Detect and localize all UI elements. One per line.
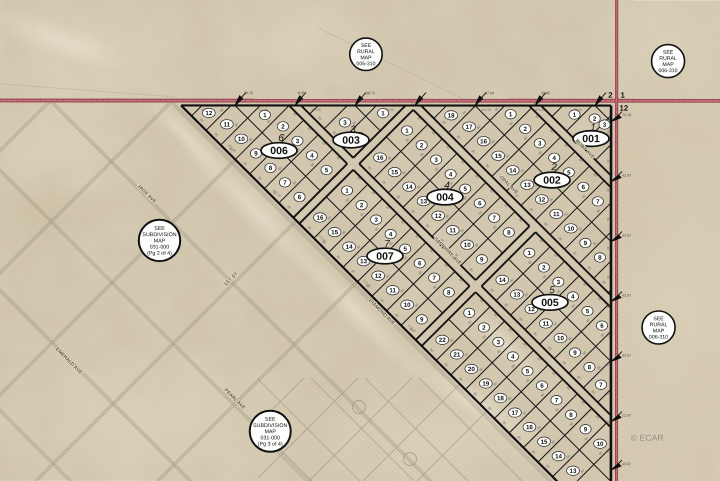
- svg-text:(Pg 3 of 4): (Pg 3 of 4): [258, 442, 283, 448]
- svg-text:8: 8: [569, 412, 573, 419]
- svg-text:6: 6: [478, 200, 482, 207]
- svg-text:30: 30: [606, 362, 610, 366]
- svg-text:6: 6: [540, 383, 544, 390]
- svg-text:16: 16: [480, 138, 487, 145]
- svg-text:10: 10: [464, 242, 471, 249]
- svg-text:1: 1: [263, 112, 267, 119]
- svg-text:1: 1: [573, 112, 577, 119]
- svg-text:4: 4: [571, 294, 575, 301]
- svg-text:20: 20: [468, 366, 475, 373]
- svg-text:13: 13: [360, 258, 367, 265]
- svg-text:1: 1: [509, 111, 513, 118]
- svg-text:4: 4: [449, 171, 453, 178]
- svg-text:13: 13: [420, 198, 427, 205]
- svg-text:13: 13: [524, 182, 531, 189]
- svg-text:SEE: SEE: [361, 43, 372, 49]
- svg-text:17: 17: [466, 124, 473, 131]
- svg-text:18: 18: [497, 395, 504, 402]
- svg-text:2: 2: [482, 325, 486, 332]
- svg-text:006-310: 006-310: [649, 335, 668, 341]
- svg-text:16: 16: [317, 215, 324, 222]
- svg-text:8: 8: [269, 165, 273, 172]
- svg-text:30: 30: [606, 304, 610, 308]
- svg-text:002: 002: [543, 175, 561, 187]
- svg-text:15: 15: [391, 169, 398, 176]
- svg-text:12.97: 12.97: [622, 414, 631, 418]
- svg-text:9: 9: [584, 426, 588, 433]
- svg-text:2: 2: [281, 124, 285, 131]
- svg-text:30: 30: [606, 391, 610, 395]
- svg-text:18.45: 18.45: [541, 91, 550, 95]
- svg-text:14: 14: [555, 453, 562, 460]
- svg-text:10: 10: [557, 335, 564, 342]
- svg-text:001: 001: [582, 133, 600, 145]
- svg-text:031-000: 031-000: [150, 245, 169, 251]
- svg-text:SEE: SEE: [663, 50, 674, 56]
- svg-text:37.94: 37.94: [485, 91, 494, 95]
- svg-text:43.97: 43.97: [622, 234, 631, 238]
- svg-text:9: 9: [420, 317, 424, 324]
- svg-text:17: 17: [511, 410, 518, 417]
- svg-text:14: 14: [346, 244, 353, 251]
- svg-text:24.78: 24.78: [244, 91, 253, 95]
- svg-text:006-310: 006-310: [356, 61, 375, 67]
- svg-text:8: 8: [588, 364, 592, 371]
- svg-text:5: 5: [586, 308, 590, 315]
- svg-text:006-310: 006-310: [659, 68, 678, 74]
- svg-text:MAP: MAP: [360, 55, 372, 61]
- svg-text:11: 11: [389, 287, 396, 294]
- svg-text:2: 2: [524, 126, 528, 133]
- svg-text:MAP: MAP: [653, 328, 665, 334]
- svg-text:SUBDIVISION: SUBDIVISION: [253, 423, 287, 429]
- svg-text:3: 3: [374, 217, 378, 224]
- svg-text:14: 14: [499, 277, 506, 284]
- svg-text:9: 9: [254, 151, 258, 158]
- svg-text:1: 1: [405, 128, 409, 135]
- svg-text:MAP: MAP: [154, 238, 166, 244]
- svg-text:2: 2: [542, 265, 546, 272]
- svg-text:14: 14: [509, 167, 516, 174]
- svg-text:RURAL: RURAL: [659, 56, 677, 62]
- svg-text:15: 15: [495, 153, 502, 160]
- svg-text:30: 30: [606, 420, 610, 424]
- svg-text:7: 7: [283, 180, 287, 187]
- svg-text:30: 30: [606, 159, 610, 163]
- svg-text:12: 12: [205, 110, 212, 117]
- svg-text:10: 10: [404, 302, 411, 309]
- svg-text:43.97: 43.97: [622, 294, 631, 298]
- svg-text:8.45: 8.45: [298, 91, 305, 95]
- svg-text:3: 3: [603, 122, 607, 129]
- svg-text:3: 3: [497, 339, 501, 346]
- svg-text:9: 9: [584, 240, 588, 247]
- svg-text:(Pg 2 of 4): (Pg 2 of 4): [147, 251, 172, 257]
- svg-text:3: 3: [538, 140, 542, 147]
- svg-text:9: 9: [573, 350, 577, 357]
- svg-text:MAP: MAP: [662, 62, 674, 68]
- svg-text:5: 5: [325, 167, 329, 174]
- svg-text:4: 4: [553, 155, 557, 162]
- svg-text:14: 14: [406, 184, 413, 191]
- svg-text:© ECAR: © ECAR: [631, 433, 664, 443]
- svg-text:30: 30: [606, 217, 610, 221]
- svg-text:2: 2: [420, 142, 424, 149]
- svg-text:10: 10: [238, 136, 245, 143]
- svg-text:2: 2: [360, 202, 364, 209]
- svg-text:16: 16: [377, 155, 384, 162]
- svg-text:10: 10: [567, 226, 574, 233]
- svg-text:1: 1: [468, 310, 472, 317]
- svg-text:SEE: SEE: [653, 316, 664, 322]
- svg-text:375.36: 375.36: [311, 108, 321, 112]
- svg-text:12: 12: [435, 213, 442, 220]
- svg-text:6: 6: [582, 184, 586, 191]
- svg-text:15: 15: [331, 229, 338, 236]
- svg-text:19: 19: [482, 381, 489, 388]
- svg-text:10: 10: [597, 441, 604, 448]
- svg-text:11: 11: [224, 121, 231, 128]
- svg-text:SUBDIVISION: SUBDIVISION: [142, 232, 176, 238]
- svg-text:7: 7: [432, 275, 436, 282]
- svg-text:6: 6: [418, 260, 422, 267]
- svg-text:1: 1: [528, 250, 532, 257]
- svg-text:12: 12: [375, 273, 382, 280]
- svg-text:12: 12: [538, 197, 545, 204]
- svg-text:RURAL: RURAL: [650, 322, 668, 328]
- svg-text:8: 8: [447, 290, 451, 297]
- svg-text:13: 13: [513, 292, 520, 299]
- svg-text:42.97: 42.97: [622, 174, 631, 178]
- svg-text:5: 5: [526, 368, 530, 375]
- svg-text:004: 004: [436, 192, 454, 204]
- svg-text:006: 006: [270, 145, 288, 157]
- svg-text:7: 7: [596, 199, 600, 206]
- svg-text:12: 12: [620, 104, 629, 113]
- svg-text:412.13: 412.13: [481, 108, 491, 112]
- svg-text:11: 11: [543, 321, 550, 328]
- svg-text:MAP: MAP: [264, 429, 276, 435]
- svg-text:1: 1: [621, 91, 626, 100]
- svg-text:2: 2: [550, 162, 557, 173]
- svg-text:4: 4: [310, 153, 314, 160]
- svg-text:6: 6: [298, 194, 302, 201]
- svg-text:30: 30: [606, 275, 610, 279]
- svg-text:30: 30: [606, 188, 610, 192]
- svg-text:11: 11: [449, 227, 456, 234]
- svg-text:1: 1: [381, 110, 385, 117]
- svg-text:8: 8: [507, 230, 511, 237]
- svg-text:22: 22: [439, 337, 446, 344]
- svg-text:005: 005: [541, 297, 559, 309]
- svg-text:003: 003: [342, 135, 360, 147]
- svg-text:7: 7: [492, 215, 496, 222]
- svg-text:38.76: 38.76: [366, 91, 375, 95]
- svg-text:4: 4: [511, 354, 515, 361]
- svg-text:18: 18: [448, 113, 455, 120]
- svg-text:13: 13: [570, 468, 577, 475]
- svg-text:1: 1: [345, 188, 349, 195]
- svg-text:30: 30: [606, 130, 610, 134]
- svg-text:7: 7: [555, 397, 559, 404]
- svg-text:43.97: 43.97: [622, 462, 631, 466]
- svg-text:6: 6: [600, 323, 604, 330]
- svg-text:SEE: SEE: [265, 417, 276, 423]
- svg-text:43.97: 43.97: [622, 354, 631, 358]
- svg-text:8: 8: [598, 255, 602, 262]
- svg-text:30: 30: [606, 333, 610, 337]
- svg-text:16: 16: [526, 424, 533, 431]
- svg-text:15: 15: [541, 439, 548, 446]
- svg-text:3: 3: [296, 138, 300, 145]
- svg-text:SEE: SEE: [154, 226, 165, 232]
- svg-text:9: 9: [480, 257, 484, 264]
- svg-text:30: 30: [606, 246, 610, 250]
- svg-text:031-000: 031-000: [261, 435, 280, 441]
- svg-text:75.18: 75.18: [622, 113, 631, 117]
- svg-text:375.36: 375.36: [535, 108, 545, 112]
- svg-text:30: 30: [606, 449, 610, 453]
- svg-text:3: 3: [557, 279, 561, 286]
- svg-text:21: 21: [453, 352, 460, 359]
- svg-text:3: 3: [343, 120, 347, 127]
- svg-text:11: 11: [553, 211, 560, 218]
- svg-text:007: 007: [376, 251, 394, 263]
- svg-text:5: 5: [463, 186, 467, 193]
- svg-text:4: 4: [389, 231, 393, 238]
- svg-text:2: 2: [608, 91, 613, 100]
- svg-text:7: 7: [599, 382, 603, 389]
- svg-text:5: 5: [403, 246, 407, 253]
- svg-text:3: 3: [434, 157, 438, 164]
